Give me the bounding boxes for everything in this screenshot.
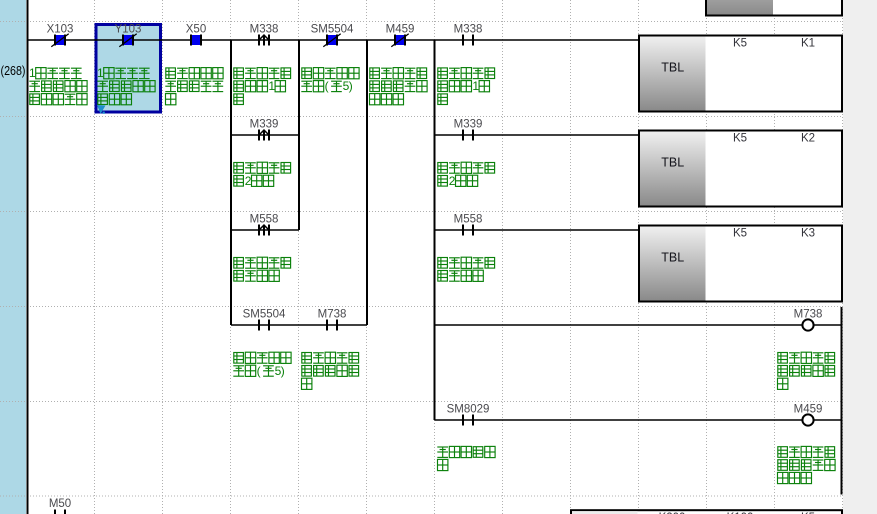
svg-text:1: 1 — [97, 66, 104, 80]
svg-text:(: ( — [325, 79, 329, 93]
svg-text:M558: M558 — [454, 213, 483, 225]
svg-text:TBL: TBL — [661, 156, 684, 170]
svg-text:SM5504: SM5504 — [311, 23, 354, 35]
svg-text:Y103: Y103 — [115, 23, 142, 35]
svg-text:2: 2 — [449, 174, 456, 188]
svg-text:TBL: TBL — [661, 61, 684, 75]
svg-text:2: 2 — [245, 174, 252, 188]
svg-text:M338: M338 — [454, 23, 483, 35]
svg-text:M558: M558 — [250, 213, 279, 225]
svg-text:): ) — [349, 79, 353, 93]
svg-text:M338: M338 — [250, 23, 279, 35]
svg-text:TBL: TBL — [661, 251, 684, 265]
svg-text:M50: M50 — [49, 498, 71, 510]
svg-text:SM5504: SM5504 — [243, 308, 286, 320]
svg-text:1: 1 — [268, 79, 275, 93]
svg-text:1: 1 — [29, 66, 36, 80]
svg-text:1: 1 — [472, 79, 479, 93]
svg-text:(268): (268) — [1, 63, 26, 78]
svg-text:K5: K5 — [733, 133, 747, 145]
svg-text:X103: X103 — [47, 23, 74, 35]
svg-text:M339: M339 — [454, 118, 483, 130]
svg-text:K3: K3 — [801, 228, 815, 240]
svg-text:M339: M339 — [250, 118, 279, 130]
svg-text:K2: K2 — [801, 133, 815, 145]
svg-text:SM8029: SM8029 — [447, 403, 490, 415]
svg-text:(: ( — [257, 364, 261, 378]
svg-text:K5: K5 — [733, 228, 747, 240]
svg-text:K5: K5 — [733, 38, 747, 50]
svg-text:): ) — [281, 364, 285, 378]
svg-text:M738: M738 — [318, 308, 347, 320]
svg-text:K1: K1 — [801, 38, 815, 50]
svg-text:M459: M459 — [386, 23, 415, 35]
svg-text:X50: X50 — [186, 23, 206, 35]
